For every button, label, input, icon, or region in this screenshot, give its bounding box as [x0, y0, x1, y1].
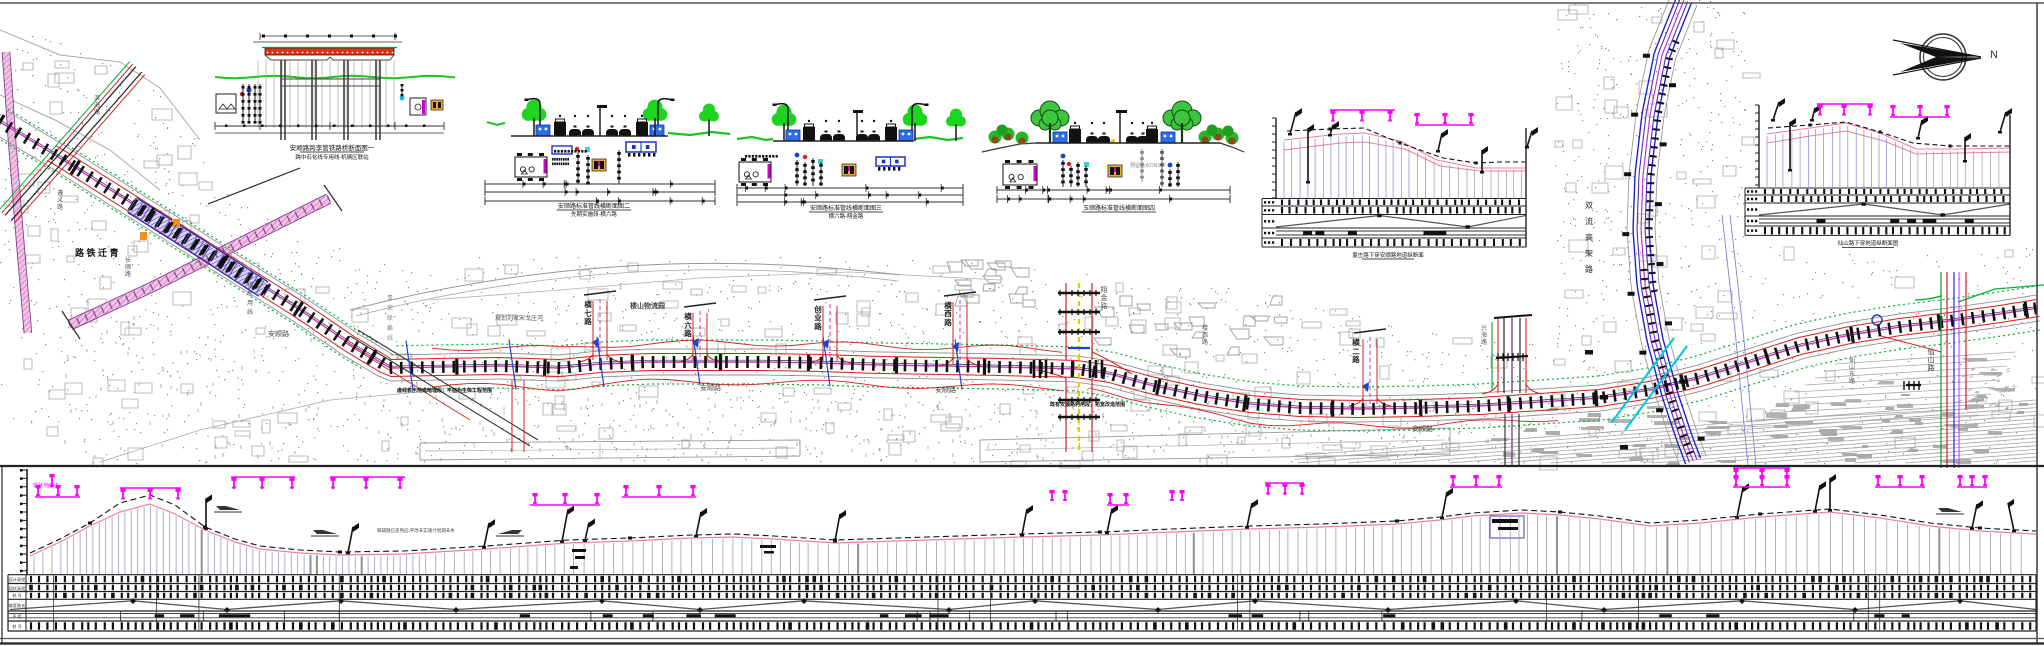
- svg-text:络: 络: [387, 324, 393, 332]
- svg-text:线: 线: [387, 334, 393, 342]
- svg-text:安顺路: 安顺路: [268, 329, 289, 338]
- svg-text:安顺路标准管线横断面图三: 安顺路标准管线横断面图三: [810, 204, 882, 212]
- svg-text:仙: 仙: [1849, 356, 1855, 364]
- svg-text:双: 双: [1585, 201, 1593, 210]
- svg-text:西: 西: [944, 309, 952, 318]
- svg-text:桩 号: 桩 号: [12, 592, 22, 599]
- svg-text:流: 流: [1585, 216, 1593, 226]
- svg-text:路: 路: [1585, 264, 1593, 274]
- svg-text:路: 路: [94, 108, 100, 116]
- svg-text:路: 路: [1849, 377, 1855, 385]
- svg-text:海: 海: [94, 101, 100, 109]
- svg-text:路: 路: [57, 203, 63, 211]
- svg-text:先期实施段-横六路: 先期实施段-横六路: [571, 210, 617, 218]
- svg-text:规划刘家宋戈庄河: 规划刘家宋戈庄河: [495, 314, 543, 322]
- svg-text:铁辅隧已盖预应,平改未实施计划期未失: 铁辅隧已盖预应,平改未实施计划期未失: [377, 527, 455, 534]
- svg-text:高: 高: [1585, 232, 1593, 242]
- svg-text:N: N: [1990, 49, 1998, 61]
- svg-text:架: 架: [1585, 249, 1593, 258]
- svg-text:青: 青: [387, 294, 393, 302]
- svg-text:路: 路: [1202, 338, 1208, 346]
- svg-text:山: 山: [1928, 355, 1935, 364]
- svg-text:联: 联: [387, 314, 393, 322]
- svg-text:用: 用: [247, 300, 253, 307]
- svg-text:路: 路: [684, 328, 692, 338]
- svg-text:海: 海: [1481, 331, 1487, 339]
- svg-text:西: 西: [1202, 332, 1208, 339]
- svg-text:安顺路跨李管铁路桥断面图一: 安顺路跨李管铁路桥断面图一: [290, 143, 375, 152]
- svg-text:路: 路: [1101, 301, 1108, 310]
- svg-text:横六路-翔金路: 横六路-翔金路: [829, 212, 864, 220]
- svg-text:路: 路: [944, 317, 952, 327]
- svg-text:路: 路: [125, 270, 131, 278]
- svg-text:滨: 滨: [94, 94, 100, 102]
- svg-text:跨中石化线专用线-机辆区联站: 跨中石化线专用线-机辆区联站: [295, 153, 369, 161]
- svg-text:楼: 楼: [1202, 324, 1208, 332]
- svg-text:遵: 遵: [57, 189, 63, 197]
- svg-text:横: 横: [584, 299, 592, 309]
- svg-text:仙山路下穿地道纵断面图: 仙山路下穿地道纵断面图: [1838, 239, 1899, 247]
- svg-text:桩 号: 桩 号: [12, 623, 22, 630]
- svg-text:专: 专: [247, 290, 253, 298]
- svg-text:横: 横: [1352, 337, 1360, 347]
- svg-text:翔: 翔: [1101, 285, 1108, 294]
- svg-text:路: 路: [1352, 354, 1360, 364]
- svg-text:既有安顺路利用段，拓宽改造范围: 既有安顺路利用段，拓宽改造范围: [1050, 401, 1125, 408]
- svg-text:横: 横: [684, 311, 692, 321]
- svg-text:顺: 顺: [125, 264, 131, 271]
- svg-text:安顺路: 安顺路: [1412, 424, 1433, 433]
- svg-text:路: 路: [814, 321, 822, 331]
- svg-text:路: 路: [1928, 363, 1935, 372]
- svg-text:楼山物流园: 楼山物流园: [630, 301, 665, 310]
- svg-text:兴: 兴: [1481, 324, 1487, 332]
- svg-text:金: 金: [1101, 293, 1108, 302]
- svg-text:荣: 荣: [387, 304, 393, 312]
- svg-text:安顺路标准管线横断面图二: 安顺路标准管线横断面图二: [558, 202, 630, 210]
- svg-text:路 铁 迁 青: 路 铁 迁 青: [75, 247, 119, 258]
- svg-text:安顺路: 安顺路: [700, 383, 721, 392]
- svg-text:安顺路: 安顺路: [935, 385, 956, 394]
- svg-text:山: 山: [1849, 363, 1855, 371]
- svg-text:虚线表示地道暗埋段，平面为主体工程范围: 虚线表示地道暗埋段，平面为主体工程范围: [397, 387, 492, 394]
- svg-text:玉顺路标准管线横断面图四: 玉顺路标准管线横断面图四: [1083, 204, 1155, 212]
- svg-text:设计高程: 设计高程: [9, 576, 27, 583]
- svg-text:路: 路: [584, 316, 592, 326]
- svg-text:义: 义: [57, 197, 63, 204]
- svg-text:仙: 仙: [1928, 347, 1935, 356]
- svg-text:线: 线: [247, 308, 253, 316]
- svg-text:东: 东: [1849, 370, 1855, 378]
- svg-text:路: 路: [1481, 338, 1487, 346]
- svg-text:长: 长: [125, 256, 131, 264]
- svg-text:夏庄路下穿安顺路地道纵断面: 夏庄路下穿安顺路地道纵断面: [1352, 251, 1424, 259]
- svg-text:业: 业: [814, 312, 822, 322]
